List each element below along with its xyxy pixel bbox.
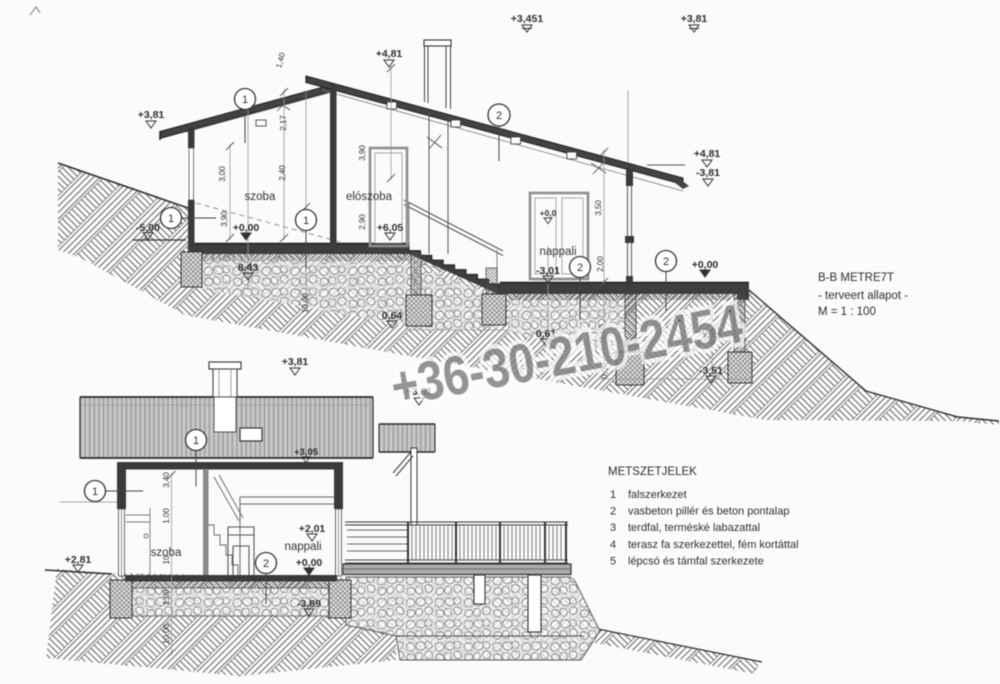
svg-text:2: 2 (610, 506, 616, 518)
svg-text:3,40: 3,40 (162, 472, 171, 488)
svg-text:-3,81: -3,81 (696, 167, 720, 179)
svg-text:+3,05: +3,05 (294, 447, 319, 458)
svg-text:METSZETJELEK: METSZETJELEK (608, 466, 697, 478)
svg-text:1: 1 (92, 486, 98, 498)
svg-text:-3,01: -3,01 (536, 265, 560, 277)
svg-text:nappali: nappali (284, 541, 321, 553)
svg-text:+0,00: +0,00 (296, 557, 323, 569)
svg-text:+3,81: +3,81 (282, 356, 309, 368)
svg-text:8,43: 8,43 (238, 262, 259, 274)
svg-text:+4,81: +4,81 (694, 148, 721, 160)
svg-text:+4,81: +4,81 (376, 48, 403, 60)
svg-text:3,90: 3,90 (358, 145, 367, 161)
svg-text:+2,01: +2,01 (299, 523, 326, 535)
svg-text:2: 2 (663, 256, 669, 268)
svg-text:elószoba: elószoba (346, 191, 393, 203)
svg-text:terasz fa szerkezettel, fém ko: terasz fa szerkezettel, fém kortáttal (628, 539, 799, 551)
svg-text:- terveert allapot -: - terveert allapot - (818, 290, 908, 302)
svg-text:+0,00: +0,00 (692, 259, 719, 271)
svg-text:1: 1 (168, 213, 174, 225)
svg-text:3,50: 3,50 (594, 200, 603, 216)
svg-text:+3,451: +3,451 (511, 13, 544, 25)
svg-text:+2,81: +2,81 (65, 554, 92, 566)
svg-text:4: 4 (610, 539, 616, 551)
svg-text:lépcsó és támfal szerkezete: lépcsó és támfal szerkezete (628, 556, 764, 568)
svg-text:3,00: 3,00 (218, 166, 227, 182)
svg-text:+3,81: +3,81 (138, 109, 165, 121)
svg-text:3,90: 3,90 (220, 211, 229, 227)
svg-text:+3,81: +3,81 (681, 13, 708, 25)
svg-text:1,00: 1,00 (162, 589, 171, 605)
svg-text:szoba: szoba (245, 191, 276, 203)
svg-text:10,00: 10,00 (301, 292, 310, 313)
svg-text:1: 1 (193, 435, 199, 447)
svg-text:vasbeton pillér és beton ponta: vasbeton pillér és beton pontalap (628, 506, 789, 518)
svg-text:B-B METRE7T: B-B METRE7T (818, 272, 894, 284)
svg-text:falszerkezet: falszerkezet (628, 489, 687, 501)
svg-text:2,90: 2,90 (358, 214, 367, 230)
svg-text:M = 1 : 100: M = 1 : 100 (818, 306, 876, 318)
svg-text:2: 2 (496, 110, 502, 122)
svg-text:2,00: 2,00 (596, 256, 605, 272)
svg-text:10,00: 10,00 (162, 623, 171, 644)
svg-text:1,00: 1,00 (162, 508, 171, 524)
svg-text:0,64: 0,64 (382, 310, 403, 322)
svg-text:3: 3 (610, 522, 616, 534)
svg-text:+0,00: +0,00 (233, 222, 260, 234)
svg-text:10: 10 (162, 555, 171, 564)
svg-text:terdfal, terméské labazattal: terdfal, terméské labazattal (628, 522, 760, 534)
svg-text:1: 1 (610, 489, 616, 501)
svg-text:nappali: nappali (539, 246, 576, 258)
svg-text:+0,0: +0,0 (540, 208, 557, 218)
svg-text:2,17: 2,17 (279, 115, 288, 131)
svg-text:-3,51: -3,51 (699, 365, 723, 377)
svg-text:-3,89: -3,89 (297, 598, 321, 610)
svg-text:5: 5 (610, 556, 616, 568)
svg-text:2,40: 2,40 (278, 165, 287, 181)
svg-text:1: 1 (303, 215, 309, 227)
svg-text:1: 1 (242, 94, 248, 106)
svg-text:2: 2 (263, 558, 269, 570)
svg-text:2: 2 (577, 262, 583, 274)
svg-text:+6,05: +6,05 (377, 222, 404, 234)
